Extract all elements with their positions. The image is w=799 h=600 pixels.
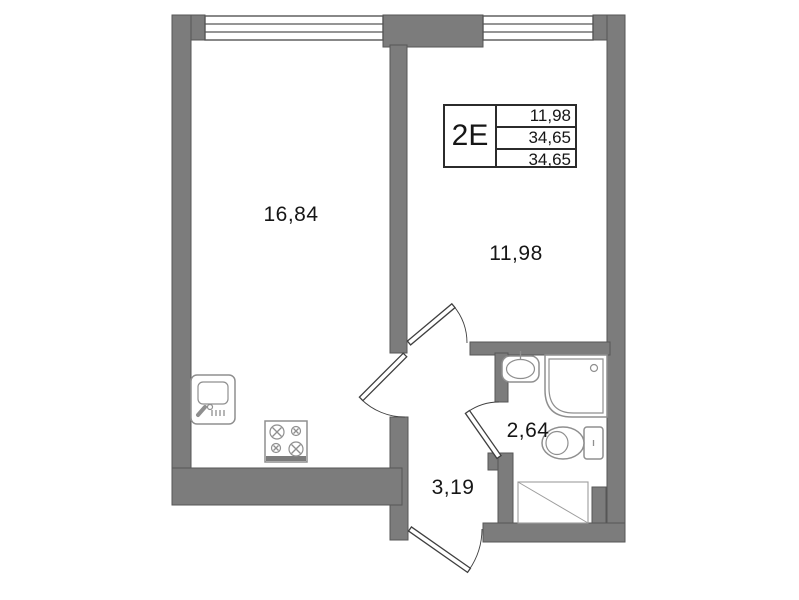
unit-type-label: 2E	[445, 106, 497, 166]
room-label-living-kitchen: 16,84	[263, 203, 318, 227]
kitchen-sink-icon	[191, 375, 235, 424]
door-entrance-icon	[409, 527, 482, 572]
unit-info-table: 2E 11,98 34,65 34,65	[443, 104, 577, 168]
window-icon	[483, 16, 593, 40]
washing-machine-area	[518, 482, 588, 523]
unit-area-list: 11,98 34,65 34,65	[497, 106, 575, 166]
room-label-bathroom: 2,64	[507, 419, 550, 443]
room-label-hallway: 3,19	[432, 476, 475, 500]
floor-plan-drawing	[0, 0, 799, 600]
unit-area-row: 11,98	[497, 106, 575, 126]
room-label-bedroom: 11,98	[489, 242, 543, 266]
floor-plan: 16,84 11,98 2,64 3,19 2E 11,98 34,65 34,…	[0, 0, 799, 600]
shower-icon	[545, 355, 607, 417]
room-bedroom	[407, 47, 607, 342]
unit-area-row: 34,65	[497, 126, 575, 150]
toilet-icon	[542, 427, 603, 459]
window-icon	[205, 16, 383, 40]
washbasin-icon	[502, 351, 539, 382]
unit-area-row: 34,65	[497, 150, 575, 170]
stove-icon	[265, 421, 307, 462]
